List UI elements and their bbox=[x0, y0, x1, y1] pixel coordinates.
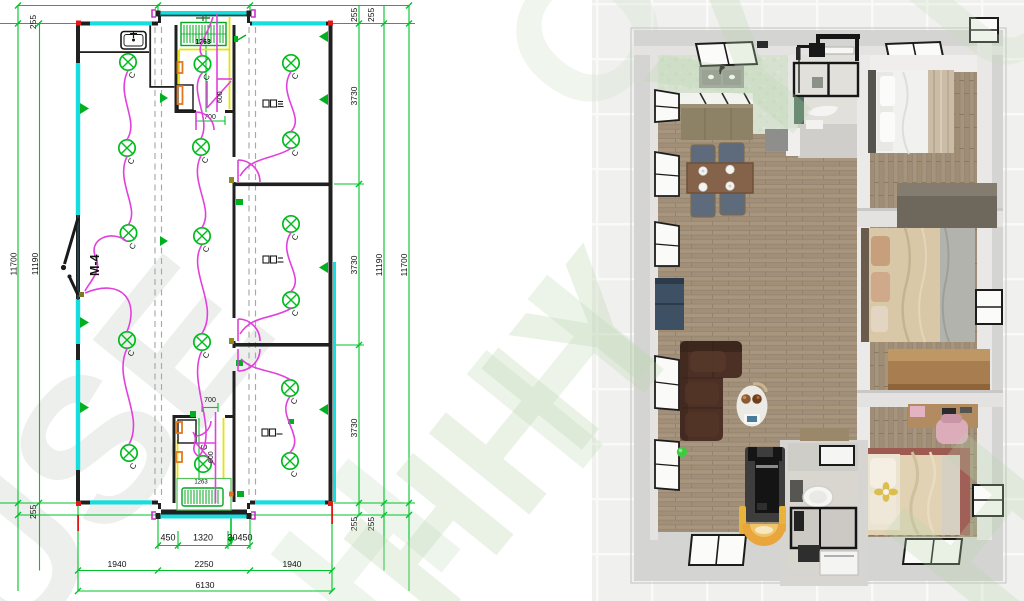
svg-text:3730: 3730 bbox=[349, 255, 359, 274]
svg-text:3730: 3730 bbox=[349, 86, 359, 105]
svg-text:11700: 11700 bbox=[9, 252, 19, 275]
svg-text:3730: 3730 bbox=[349, 418, 359, 437]
svg-text:255: 255 bbox=[28, 505, 38, 519]
svg-text:11700: 11700 bbox=[399, 253, 409, 276]
svg-text:1940: 1940 bbox=[283, 559, 302, 569]
svg-text:2250: 2250 bbox=[195, 559, 214, 569]
svg-text:255: 255 bbox=[366, 8, 376, 22]
svg-text:M-4: M-4 bbox=[88, 254, 102, 276]
svg-text:255: 255 bbox=[28, 15, 38, 29]
svg-text:450: 450 bbox=[160, 533, 175, 543]
svg-text:1320: 1320 bbox=[193, 533, 213, 543]
svg-text:6130: 6130 bbox=[196, 580, 215, 590]
svg-text:600: 600 bbox=[217, 91, 224, 103]
svg-text:600: 600 bbox=[208, 451, 215, 463]
svg-text:1263: 1263 bbox=[194, 480, 208, 486]
svg-text:11190: 11190 bbox=[374, 254, 384, 277]
svg-text:1940: 1940 bbox=[108, 559, 127, 569]
svg-text:255: 255 bbox=[349, 8, 359, 22]
svg-text:700: 700 bbox=[204, 397, 216, 404]
svg-text:30450: 30450 bbox=[227, 533, 252, 543]
svg-text:11190: 11190 bbox=[30, 253, 40, 276]
